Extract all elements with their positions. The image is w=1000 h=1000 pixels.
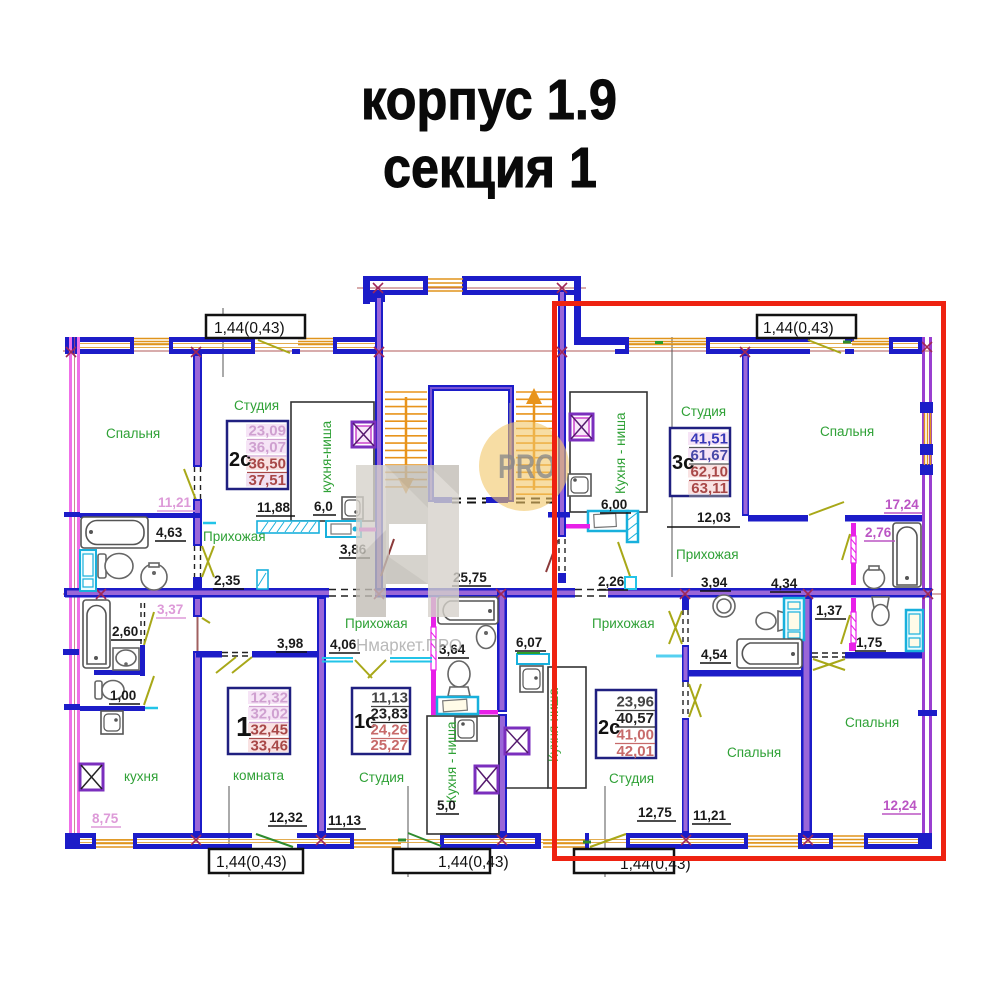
svg-text:3,37: 3,37 [157,602,183,617]
svg-text:секция 1: секция 1 [383,136,597,200]
svg-text:23,09: 23,09 [248,423,286,440]
svg-text:Спальня: Спальня [106,426,160,441]
svg-text:Спальня: Спальня [845,715,899,730]
svg-text:1,44(0,43): 1,44(0,43) [763,320,834,337]
svg-text:6,07: 6,07 [516,635,542,650]
svg-text:6,00: 6,00 [601,497,627,512]
svg-text:33,46: 33,46 [250,738,288,755]
svg-text:корпус 1.9: корпус 1.9 [361,68,617,132]
svg-text:2,35: 2,35 [214,573,241,588]
svg-text:Кухня - ниша: Кухня - ниша [444,721,459,803]
svg-text:Студия: Студия [681,404,726,419]
svg-text:кухня-ниша: кухня-ниша [319,420,334,493]
svg-text:6,0: 6,0 [314,499,333,514]
svg-text:1,00: 1,00 [110,688,136,703]
svg-text:Студия: Студия [609,771,654,786]
svg-text:32,02: 32,02 [250,706,288,723]
svg-text:36,50: 36,50 [248,456,286,473]
svg-text:1: 1 [236,711,252,742]
svg-text:2,26: 2,26 [598,574,625,589]
svg-text:4,63: 4,63 [156,525,183,540]
svg-text:61,67: 61,67 [690,447,728,464]
svg-text:24,26: 24,26 [370,722,408,739]
svg-text:Спальня: Спальня [820,424,874,439]
svg-text:Прихожая: Прихожая [345,616,408,631]
svg-text:12,24: 12,24 [883,798,917,813]
svg-text:11,88: 11,88 [257,500,291,515]
svg-text:Прихожая: Прихожая [676,547,739,562]
svg-text:1,75: 1,75 [856,635,883,650]
svg-text:63,11: 63,11 [691,480,728,497]
svg-text:Нмаркет.ПРО: Нмаркет.ПРО [356,635,462,655]
svg-text:4,34: 4,34 [771,576,798,591]
svg-text:23,83: 23,83 [370,706,408,723]
svg-text:11,21: 11,21 [158,495,192,510]
svg-text:12,32: 12,32 [269,810,303,825]
svg-text:62,10: 62,10 [690,464,728,481]
svg-text:Прихожая: Прихожая [203,529,266,544]
svg-text:PRO: PRO [498,448,556,486]
svg-text:Спальня: Спальня [727,745,781,760]
svg-text:1,44(0,43): 1,44(0,43) [216,854,287,871]
svg-text:2,60: 2,60 [112,624,138,639]
svg-text:4,54: 4,54 [701,647,728,662]
svg-text:32,45: 32,45 [250,722,288,739]
svg-text:40,57: 40,57 [616,710,654,727]
svg-text:11,21: 11,21 [693,808,727,823]
svg-text:3,94: 3,94 [701,575,728,590]
svg-text:Студия: Студия [359,770,404,785]
svg-text:41,51: 41,51 [690,431,728,448]
svg-text:5,0: 5,0 [437,798,456,813]
svg-text:Прихожая: Прихожая [592,616,655,631]
svg-text:Студия: Студия [234,398,279,413]
svg-text:41,00: 41,00 [616,727,654,744]
svg-text:23,96: 23,96 [616,694,654,711]
svg-text:2,76: 2,76 [865,525,892,540]
svg-text:12,32: 12,32 [250,690,288,707]
svg-text:1,44(0,43): 1,44(0,43) [438,854,509,871]
svg-text:1,37: 1,37 [816,603,842,618]
svg-text:кухня: кухня [124,769,158,784]
svg-text:11,13: 11,13 [328,813,362,828]
svg-text:12,03: 12,03 [697,510,731,525]
svg-text:37,51: 37,51 [248,472,286,489]
svg-text:8,75: 8,75 [92,811,119,826]
svg-text:комната: комната [233,768,285,783]
svg-text:Кухня - ниша: Кухня - ниша [613,412,628,494]
svg-text:25,27: 25,27 [370,737,408,754]
svg-text:12,75: 12,75 [638,805,672,820]
svg-text:36,07: 36,07 [248,439,286,456]
svg-text:4,06: 4,06 [330,637,357,652]
svg-text:3,98: 3,98 [277,636,304,651]
svg-text:42,01: 42,01 [616,743,654,760]
svg-text:11,13: 11,13 [371,690,408,707]
svg-text:17,24: 17,24 [885,497,919,512]
svg-text:1,44(0,43): 1,44(0,43) [214,320,285,337]
